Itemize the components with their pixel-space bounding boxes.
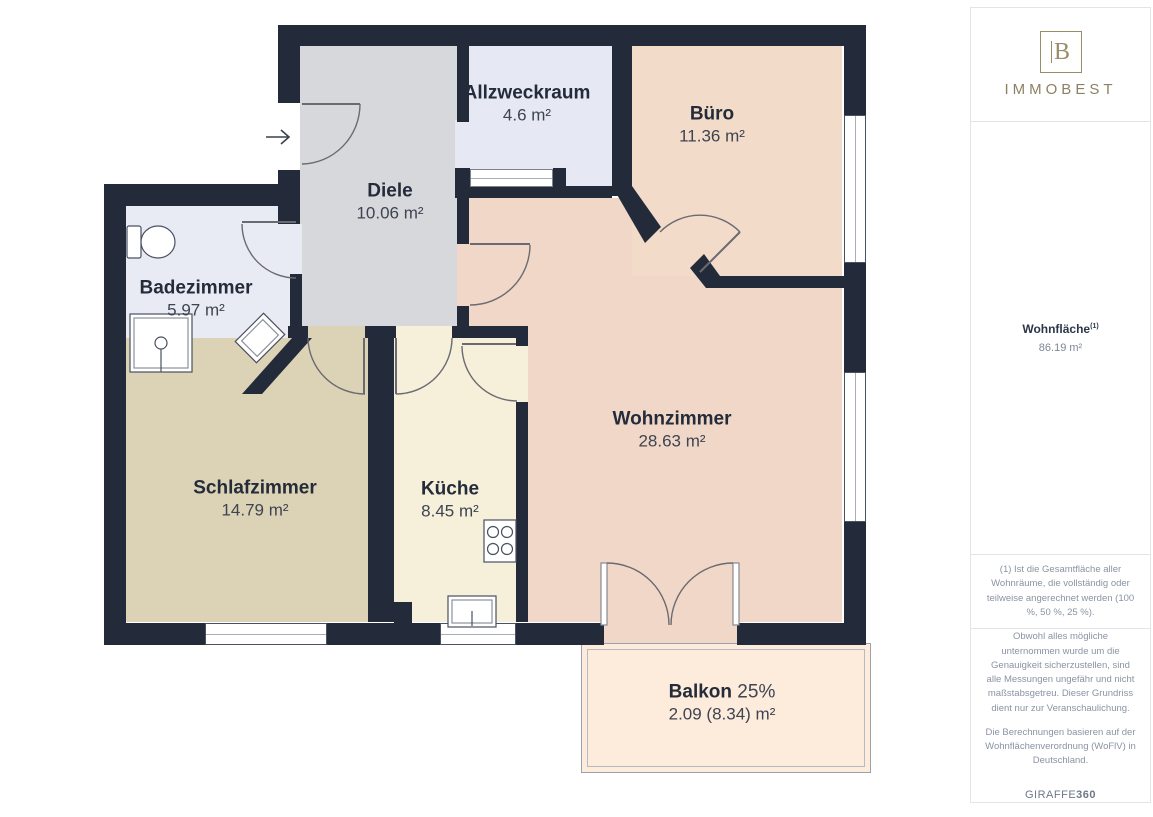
entrance-door-arc [302, 104, 360, 164]
schlafzimmer-door-arc [308, 338, 365, 394]
wohnzimmer-door-arc [470, 245, 530, 305]
balcony-door-left-leaf [601, 563, 607, 625]
toilet-icon [127, 226, 175, 258]
kueche-east-door-arc [462, 346, 517, 401]
info-sidebar: B IMMOBEST Wohnfläche(1) 86.19 m² (1) Is… [970, 8, 1151, 803]
balcony-door-right-arc [671, 563, 733, 625]
room-label-buero: Büro 11.36 m² [679, 103, 745, 146]
wall-diagonal-buero-nub [690, 254, 720, 288]
immobest-logo-icon: B [1040, 31, 1082, 73]
logo-panel: B IMMOBEST [970, 7, 1151, 122]
stove-icon [484, 520, 516, 562]
buero-door-leaf [700, 232, 740, 272]
kitchen-sink-icon [448, 596, 496, 627]
kueche-door-arc [396, 338, 452, 394]
shower-icon [130, 314, 192, 372]
footnote-text: (1) Ist die Gesamtfläche aller Wohnräume… [983, 563, 1138, 620]
living-area-value: 86.19 m² [1039, 342, 1082, 354]
living-area-label: Wohnfläche(1) [1022, 322, 1098, 336]
entrance-arrow-icon [266, 130, 289, 144]
wall-diagonal-buero [612, 186, 661, 243]
disclaimer-text-1: Obwohl alles mögliche unternommen wurde … [983, 630, 1138, 716]
giraffe360-brand: GIRAFFE360 [1025, 789, 1096, 801]
floor-plan: Allzweckraum 4.6 m² Büro 11.36 m² Diele … [0, 0, 970, 817]
room-label-schlafzimmer: Schlafzimmer 14.79 m² [193, 477, 317, 520]
room-label-kueche: Küche 8.45 m² [421, 478, 479, 521]
room-label-diele: Diele 10.06 m² [356, 180, 423, 223]
balcony-door-right-leaf [733, 563, 739, 625]
room-label-badezimmer: Badezimmer 5.97 m² [140, 277, 253, 320]
disclaimer-panel: Obwohl alles mögliche unternommen wurde … [970, 628, 1151, 803]
bathroom-door-arc [242, 224, 296, 278]
room-label-allzweckraum: Allzweckraum 4.6 m² [464, 82, 591, 125]
buero-door-arc [660, 215, 740, 232]
disclaimer-text-2: Die Berechnungen basieren auf der Wohnfl… [983, 726, 1138, 769]
balcony-door-left-arc [607, 563, 669, 625]
room-label-wohnzimmer: Wohnzimmer 28.63 m² [613, 408, 732, 451]
footnote-panel: (1) Ist die Gesamtfläche aller Wohnräume… [970, 554, 1151, 629]
room-label-balkon: Balkon 25% 2.09 (8.34) m² [669, 681, 776, 724]
logo-text: IMMOBEST [1004, 81, 1116, 98]
living-area-panel: Wohnfläche(1) 86.19 m² [970, 121, 1151, 555]
